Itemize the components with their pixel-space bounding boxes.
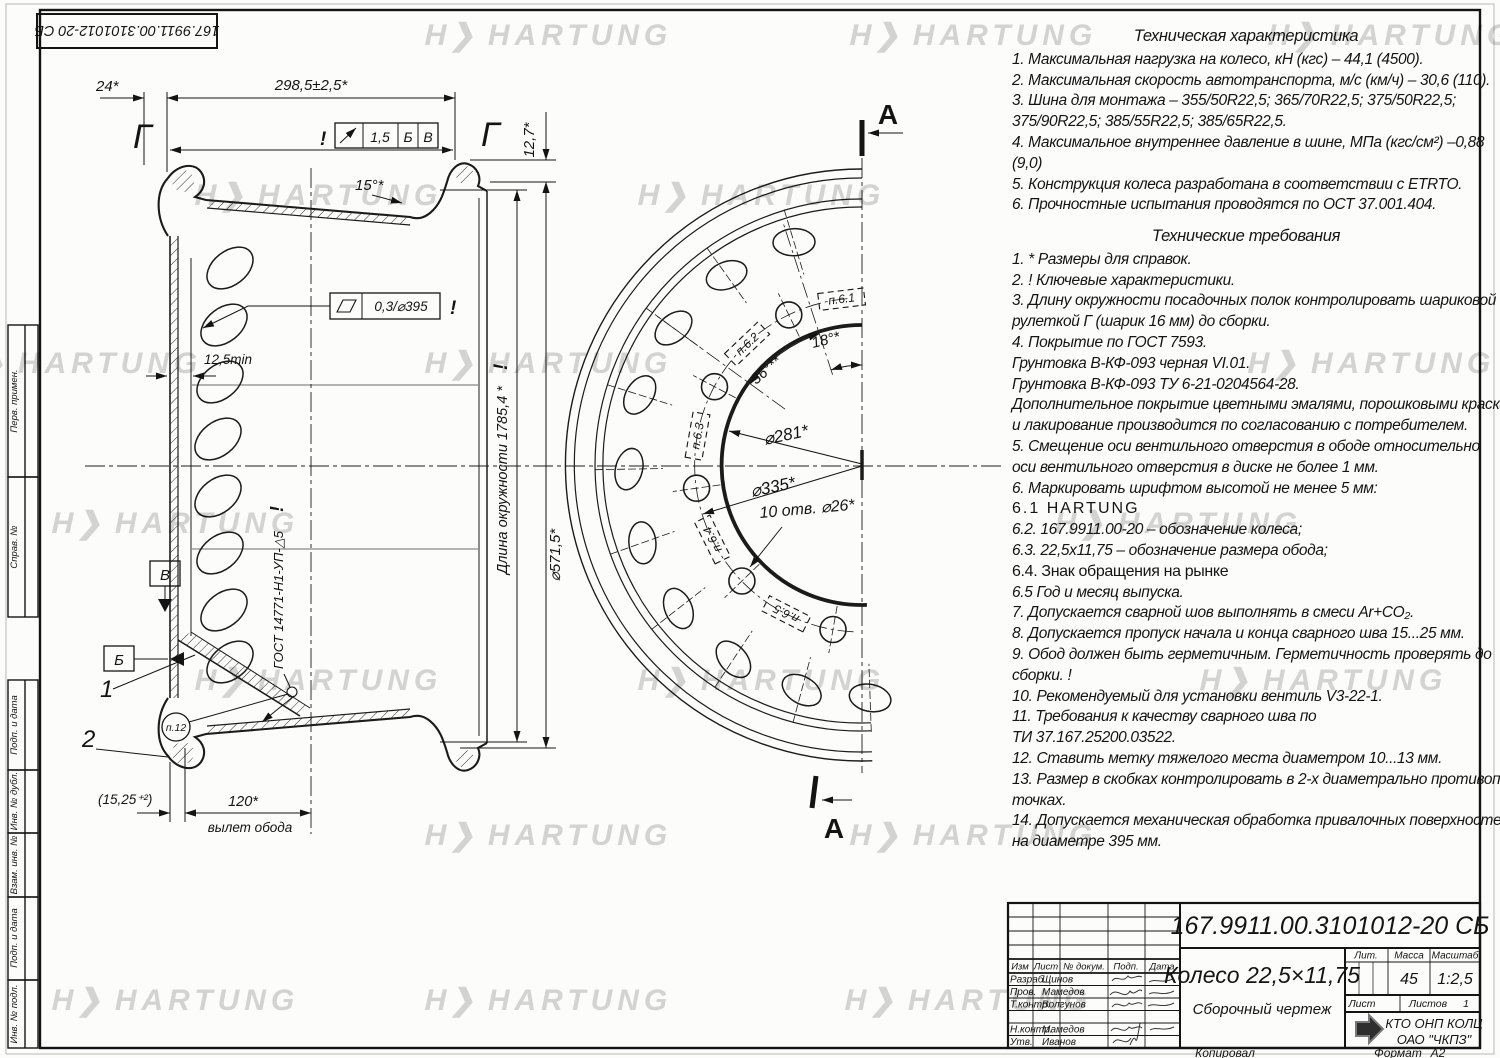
dim-12-5min: 12,5min	[204, 352, 252, 367]
tech-char-title: Техническая характеристика	[1012, 26, 1480, 47]
tech-req-line: на диаметре 395 мм.	[1012, 832, 1480, 853]
tech-req-line: 6.4. Знак обращения на рынке	[1012, 562, 1480, 583]
runout-excl: !	[320, 129, 326, 150]
mark-p65: п.6.5	[771, 601, 801, 626]
mark-p62: п.6.2	[733, 330, 762, 359]
position-2: 2	[81, 726, 95, 753]
company-line2: ОАО "ЧКПЗ"	[1397, 1032, 1473, 1047]
top-stamp-number: 167.9911.00.3101012-20 СБ	[35, 22, 220, 38]
front-view-labels: А А 18°* 36°** ⌀281* ⌀335* 10 отв. ⌀26* …	[688, 99, 898, 844]
holes-note: 10 отв. ⌀26*	[759, 497, 856, 522]
front-view	[565, 158, 893, 773]
tech-char-line: 6. Прочностные испытания проводятся по О…	[1012, 195, 1480, 216]
weld-callout: ГОСТ 14771-Н1-УП-△5	[271, 530, 286, 669]
flatness-excl: !	[450, 298, 456, 319]
tech-char-line: 1. Максимальная нагрузка на колесо, кН (…	[1012, 50, 1480, 71]
row-role: Утв.	[1009, 1037, 1033, 1048]
dim-d335: ⌀335*	[749, 473, 799, 501]
tech-req-line: 8. Допускается пропуск начала и конца св…	[1012, 624, 1480, 645]
tech-req-line: 14. Допускается механическая обработка п…	[1012, 811, 1480, 832]
tech-req-line: 9. Обод должен быть герметичным. Гермети…	[1012, 645, 1480, 666]
weld-excl: !	[267, 506, 287, 512]
flatness-value: 0,3/⌀395	[374, 299, 428, 314]
tech-req-line: Грунтовка В-КФ-093 черная VI.01.	[1012, 354, 1480, 375]
tech-req-line: 4. Покрытие по ГОСТ 7593.	[1012, 333, 1480, 354]
row-name: Мамедов	[1042, 1025, 1085, 1036]
tech-req-line: 10. Рекомендуемый для установки вентиль …	[1012, 687, 1480, 708]
dim-120: 120*	[228, 794, 259, 810]
tech-char-line: 4. Максимальное внутреннее давление в ши…	[1012, 133, 1480, 154]
margin-label: Инв. № дубл.	[9, 772, 20, 830]
section-label-bottom: А	[824, 813, 844, 844]
header-doc: № докум.	[1063, 962, 1105, 973]
section-label-top: А	[878, 99, 898, 130]
view-label-g-left: Г	[133, 118, 154, 156]
part-name: Колесо 22,5×11,75	[1164, 962, 1360, 988]
tech-req-line: 11. Требования к качеству сварного шва п…	[1012, 707, 1480, 728]
tech-char-line: 3. Шина для монтажа – 355/50R22,5; 365/7…	[1012, 91, 1480, 112]
dim-circumference: Длина окружности 1785,4 *	[495, 385, 511, 576]
dim-12-7: 12,7*	[521, 121, 538, 157]
tech-req-line: рулеткой Г (шарик 16 мм) до сборки.	[1012, 312, 1480, 333]
runout-datum2: В	[423, 129, 432, 145]
footer-copied: Копировал	[1195, 1046, 1255, 1058]
doc-number: 167.9911.00.3101012-20 СБ	[1171, 912, 1490, 940]
margin-label: Инв. № подл.	[9, 985, 20, 1044]
footer-format: Формат	[1374, 1046, 1422, 1058]
tech-req-line: 6.3. 22,5х11,75 – обозначение размера об…	[1012, 541, 1480, 562]
margin-label: Справ. №	[9, 525, 20, 568]
offset-label: вылет обода	[208, 820, 293, 835]
tech-char-line: 2. Максимальная скорость автотранспорта,…	[1012, 71, 1480, 92]
lit-label: Лит.	[1353, 951, 1377, 962]
dim-d281: ⌀281*	[762, 421, 812, 449]
mass-value: 45	[1400, 971, 1418, 988]
tech-req-line: 7. Допускается сварной шов выполнять в с…	[1012, 603, 1480, 624]
header-izm: Изм	[1011, 962, 1029, 973]
dim-24: 24*	[95, 78, 120, 95]
angle-36: 36°**	[748, 352, 786, 388]
tech-characteristics: Техническая характеристика 1. Максимальн…	[1012, 26, 1480, 216]
tech-req-line: 6.2. 167.9911.00-20 – обозначение колеса…	[1012, 520, 1480, 541]
circumference-excl: !	[491, 364, 512, 370]
dim-width: 298,5±2,5*	[274, 77, 349, 94]
tech-req-line: оси вентильного отверстия в диске не бол…	[1012, 458, 1480, 479]
margin-label: Взам. инв. №	[9, 836, 20, 895]
dim-d571: ⌀571,5*	[547, 528, 564, 582]
view-label-g-right: Г	[481, 116, 502, 154]
sheets-label: Листов	[1408, 998, 1448, 1010]
dim-15-25: (15,25⁺²)	[98, 792, 152, 807]
tech-req-line: 2. ! Ключевые характеристики.	[1012, 271, 1480, 292]
doc-type: Сборочный чертеж	[1193, 1001, 1332, 1018]
mark-p64: п.6.4	[700, 524, 725, 554]
tech-req-title: Технические требования	[1012, 226, 1480, 247]
row-name: Мамедов	[1042, 987, 1085, 998]
header-date: Дата	[1148, 962, 1174, 973]
margin-label: Перв. примен.	[9, 369, 20, 432]
runout-datum1: Б	[403, 129, 412, 145]
datum-b-label: Б	[114, 652, 124, 669]
tech-req-line: 5. Смещение оси вентильного отверстия в …	[1012, 437, 1480, 458]
mass-label: Масса	[1394, 951, 1424, 962]
runout-value: 1,5	[370, 129, 390, 145]
mark-p61: п.6.1	[828, 290, 856, 307]
tech-req-line: 6.1 HARTUNG	[1012, 499, 1480, 520]
datum-v-label: В	[160, 567, 170, 584]
tech-req-line: 1. * Размеры для справок.	[1012, 250, 1480, 271]
tech-req-line: 3. Длину окружности посадочных полок кон…	[1012, 291, 1480, 312]
header-list: Лист	[1033, 962, 1059, 973]
tech-requirements: Технические требования 1. * Размеры для …	[1012, 226, 1480, 853]
flatness-icon	[337, 300, 356, 312]
row-role: Разраб.	[1010, 974, 1046, 986]
left-view	[85, 163, 1003, 834]
tech-char-line: 375/90R22,5; 385/55R22,5; 385/65R22,5.	[1012, 112, 1480, 133]
sheet-label: Лист	[1347, 998, 1375, 1010]
tech-char-line: 5. Конструкция колеса разработана в соот…	[1012, 175, 1480, 196]
tech-req-line: и лакирование производится по согласован…	[1012, 416, 1480, 437]
tech-req-line: 13. Размер в скобках контролировать в 2-…	[1012, 770, 1480, 791]
sheets-value: 1	[1463, 998, 1469, 1010]
tech-req-line: Дополнительное покрытие цветными эмалями…	[1012, 395, 1480, 416]
margin-label: Подп. и дата	[9, 695, 20, 754]
margin-label: Подп. и дата	[9, 908, 20, 967]
row-role: Пров.	[1010, 987, 1036, 998]
scale-label: Масштаб	[1432, 950, 1479, 962]
row-name: Иванов	[1042, 1037, 1076, 1048]
company-line1: КТО ОНП КОЛЦ	[1385, 1016, 1483, 1031]
header-sign: Подп.	[1113, 962, 1138, 973]
runout-icon	[340, 128, 356, 143]
tech-req-line: ТИ 37.167.25200.03522.	[1012, 728, 1480, 749]
balloon-p12: п.12	[166, 722, 187, 734]
row-name: Волгунов	[1042, 1000, 1086, 1011]
footer-format-value: А2	[1430, 1046, 1446, 1058]
left-margin-labels: Перв. примен. Справ. № Подп. и дата Инв.…	[9, 369, 20, 1043]
position-1: 1	[100, 676, 113, 703]
scale-value: 1:2,5	[1437, 971, 1473, 988]
tech-req-line: точках.	[1012, 791, 1480, 812]
row-name: Щинов	[1042, 975, 1073, 986]
tech-req-line: 6.5 Год и месяц выпуска.	[1012, 583, 1480, 604]
drawing-sheet: { "sheet": { "watermark": "HARTUNG", "lo…	[0, 0, 1500, 1058]
tech-req-line: Грунтовка В-КФ-093 ТУ 6-21-0204564-28.	[1012, 375, 1480, 396]
tech-req-line: 6. Маркировать шрифтом высотой не менее …	[1012, 479, 1480, 500]
tech-char-line: (9,0)	[1012, 154, 1480, 175]
angle-15: 15°*	[355, 177, 385, 194]
top-stamp: 167.9911.00.3101012-20 СБ	[35, 14, 220, 48]
tech-req-line: 12. Ставить метку тяжелого места диаметр…	[1012, 749, 1480, 770]
tech-req-line: сборки. !	[1012, 666, 1480, 687]
